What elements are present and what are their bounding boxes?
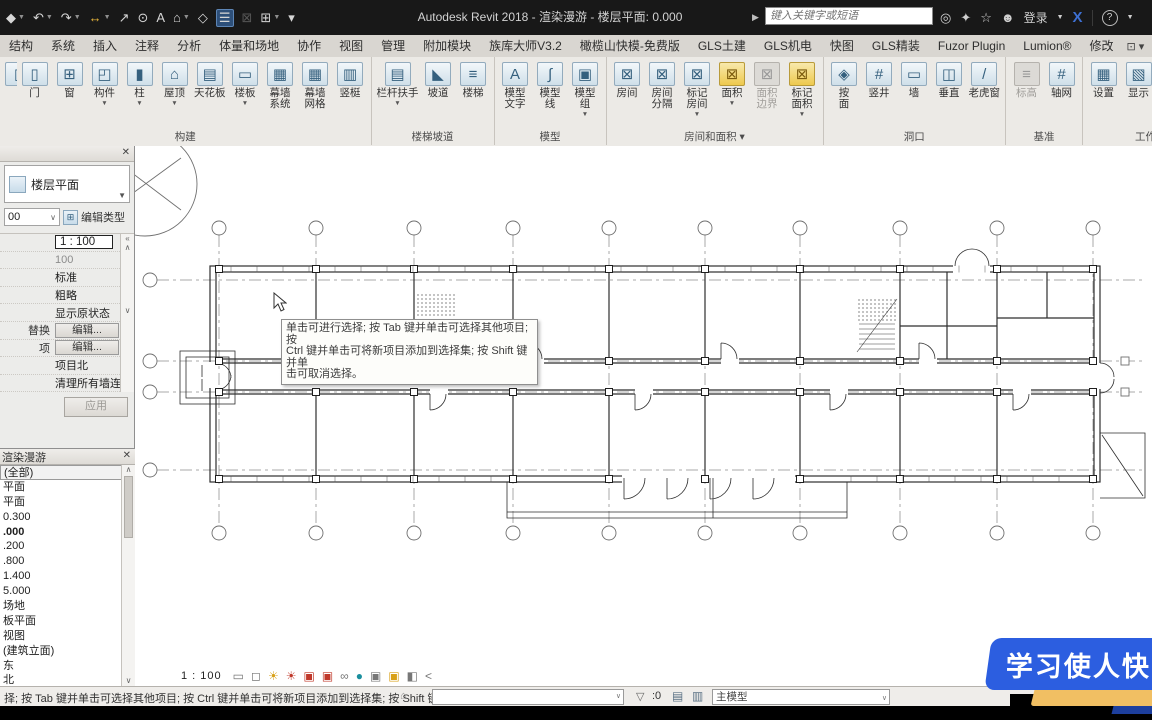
ribbon-button-label: 面积边界 bbox=[757, 88, 778, 110]
window-title: Autodesk Revit 2018 - 渲染漫游 - 楼层平面: 0.000 bbox=[330, 0, 770, 35]
窗-icon: ⊞ bbox=[57, 62, 83, 86]
ribbon-group-label: 工作平面 bbox=[1083, 130, 1152, 145]
tab-Lumion®[interactable]: Lumion® bbox=[1014, 35, 1080, 57]
ribbon-button-label: 老虎窗 bbox=[969, 88, 1001, 99]
tree-item[interactable]: 5.000 bbox=[0, 584, 122, 599]
显示-icon: ▧ bbox=[1126, 62, 1152, 86]
ribbon-button-垂直[interactable]: ◫垂直 bbox=[932, 60, 967, 99]
instance-combo-value: 00 bbox=[8, 211, 20, 223]
面积-icon: ⊠ bbox=[719, 62, 745, 86]
ribbon-button-墙[interactable]: ▭墙 bbox=[897, 60, 932, 99]
ribbon-group: ▯▯门⊞窗◰构件▼▮柱▼⌂屋顶▼▤天花板▭楼板▼▦幕墙系统▦幕墙网格▥竖梃构建 bbox=[0, 57, 372, 145]
ribbon-button-竖井[interactable]: #竖井 bbox=[862, 60, 897, 99]
divider bbox=[1092, 10, 1093, 26]
redo-icon[interactable]: ↷▼ bbox=[61, 10, 81, 26]
properties-table: «∧∨ 1 : 100100标准粗略显示原状态替换编辑...项编辑...项目北清… bbox=[0, 233, 134, 392]
ribbon-button-label: 面积 bbox=[722, 88, 743, 99]
ribbon-group-label: 楼梯坡道 bbox=[372, 130, 494, 145]
tab-注释[interactable]: 注释 bbox=[126, 35, 168, 57]
ribbon-button-模型组[interactable]: ▣模型组▼ bbox=[568, 60, 603, 118]
tree-item[interactable]: (建筑立面) bbox=[0, 644, 122, 659]
ribbon-button-房间分隔[interactable]: ⊠房间分隔 bbox=[645, 60, 680, 110]
communication-center-icon[interactable]: ✦ bbox=[960, 10, 971, 26]
ribbon-group: ▦设置▧显示▱参照平面▣查看工作平面 bbox=[1083, 57, 1152, 145]
drawing-area[interactable]: 单击可进行选择; 按 Tab 键并单击可选择其他项目; 按 Ctrl 键并单击可… bbox=[135, 146, 1152, 686]
browser-header: 渲染漫游 ✕ bbox=[0, 449, 135, 465]
天花板-icon: ▤ bbox=[197, 62, 223, 86]
properties-palette: ✕ 楼层平面 ▼ 00 ∨ ⊞ 编辑类型 «∧∨ 1 : 100100标准粗略显… bbox=[0, 146, 134, 417]
instance-combo[interactable]: 00 ∨ bbox=[4, 208, 60, 226]
tab-体量和场地[interactable]: 体量和场地 bbox=[210, 35, 288, 57]
ribbon-button-label: 幕墙系统 bbox=[270, 88, 291, 110]
ribbon-button-label: 显示 bbox=[1128, 88, 1149, 99]
left-panels: ✕ 楼层平面 ▼ 00 ∨ ⊞ 编辑类型 «∧∨ 1 : 100100标准粗略显… bbox=[0, 146, 135, 686]
ribbon-button-按面[interactable]: ◈按面 bbox=[827, 60, 862, 110]
selection-box-icon[interactable]: ◧ bbox=[407, 670, 418, 682]
tree-item[interactable]: 平面 bbox=[0, 495, 122, 510]
sun-path-icon[interactable]: ☀ bbox=[268, 670, 279, 682]
ribbon-button-房间[interactable]: ⊠房间 bbox=[610, 60, 645, 99]
tab-协作[interactable]: 协作 bbox=[288, 35, 330, 57]
displacement-sets-icon[interactable]: ▣ bbox=[388, 670, 399, 682]
title-bar: ◆▼↶▼↷▼↔▼↗⊙A⌂▼◇☰⊠⊞▼▾ Autodesk Revit 2018 … bbox=[0, 0, 1152, 35]
ribbon-button-坡道[interactable]: ◣坡道 bbox=[421, 60, 456, 99]
undo-icon[interactable]: ↶▼ bbox=[33, 10, 53, 26]
project-browser: 渲染漫游 ✕ (全部)平面平面0.300.000.200.8001.4005.0… bbox=[0, 448, 135, 686]
ribbon-tab-row: 结构系统插入注释分析体量和场地协作视图管理附加模块族库大师V3.2橄榄山快模-免… bbox=[0, 35, 1152, 57]
tab-视图[interactable]: 视图 bbox=[330, 35, 372, 57]
房间-icon: ⊠ bbox=[614, 62, 640, 86]
tab-分析[interactable]: 分析 bbox=[168, 35, 210, 57]
竖梃-icon: ▥ bbox=[337, 62, 363, 86]
favorites-icon[interactable]: ☆ bbox=[980, 10, 992, 26]
bottom-black-strip bbox=[0, 706, 1152, 720]
measure-icon[interactable]: ↔▼ bbox=[89, 10, 111, 25]
tree-item[interactable]: 场地 bbox=[0, 599, 122, 614]
edit-type-button[interactable]: ⊞ 编辑类型 bbox=[63, 209, 125, 225]
模型文字-icon: A bbox=[502, 62, 528, 86]
tree-item[interactable]: 北 bbox=[0, 673, 122, 686]
ribbon-group: ◈按面#竖井▭墙◫垂直/老虎窗洞口 bbox=[824, 57, 1007, 145]
design-option-value: 主模型 bbox=[716, 691, 748, 703]
ribbon-group: ▤栏杆扶手▼◣坡道≡楼梯楼梯坡道 bbox=[372, 57, 495, 145]
property-label: 项 bbox=[0, 340, 53, 356]
ribbon-button-label: 天花板 bbox=[194, 88, 226, 99]
tag-by-category-icon[interactable]: ⊙ bbox=[137, 10, 148, 26]
幕墙系统-icon: ▦ bbox=[267, 62, 293, 86]
close-icon[interactable]: ✕ bbox=[123, 450, 131, 461]
chevron-down-icon[interactable]: ▼ bbox=[1127, 14, 1134, 21]
按面-icon: ◈ bbox=[831, 62, 857, 86]
ribbon-button-label: 门 bbox=[29, 88, 40, 99]
chevron-down-icon[interactable]: ▼ bbox=[394, 100, 400, 107]
ribbon-button-label: 标高 bbox=[1016, 88, 1037, 99]
edit-button[interactable]: 编辑... bbox=[55, 323, 119, 338]
门-icon: ▯ bbox=[22, 62, 48, 86]
ribbon-button-标记房间[interactable]: ⊠标记房间▼ bbox=[680, 60, 715, 118]
老虎窗-icon: / bbox=[971, 62, 997, 86]
close-icon[interactable]: ✕ bbox=[122, 147, 130, 158]
edit-type-icon: ⊞ bbox=[63, 210, 78, 225]
ribbon-button-显示[interactable]: ▧显示 bbox=[1121, 60, 1152, 99]
reveal-hidden-elements-icon[interactable]: ● bbox=[356, 670, 363, 682]
ribbon-button-label: 设置 bbox=[1093, 88, 1114, 99]
chevron-down-icon[interactable]: ▼ bbox=[582, 111, 588, 118]
floor-plan-type-icon bbox=[9, 176, 26, 193]
ribbon-button-label: 墙 bbox=[909, 88, 920, 99]
status-message: 择; 按 Tab 键并单击可选择其他项目; 按 Ctrl 键并单击可将新项目添加… bbox=[4, 690, 483, 706]
ribbon-button-栏杆扶手[interactable]: ▤栏杆扶手▼ bbox=[375, 60, 421, 107]
property-row: 100 bbox=[0, 252, 134, 270]
ribbon-button-label: 模型线 bbox=[540, 88, 561, 110]
ribbon-group-label: 模型 bbox=[495, 130, 606, 145]
tab-插入[interactable]: 插入 bbox=[84, 35, 126, 57]
show-crop-region-icon[interactable]: ▣ bbox=[322, 670, 333, 682]
ribbon-button-竖梃[interactable]: ▥竖梃 bbox=[333, 60, 368, 99]
type-selector[interactable]: 楼层平面 ▼ bbox=[4, 165, 130, 203]
search-input[interactable] bbox=[765, 7, 933, 25]
titlebar-right-icons: ◎✦☆☻登录▼X?▼ bbox=[940, 0, 1134, 35]
chevron-down-icon[interactable]: ∨ bbox=[50, 213, 56, 222]
ribbon-button-门[interactable]: ▯门 bbox=[17, 60, 52, 99]
chevron-down-icon[interactable]: ▼ bbox=[171, 100, 177, 107]
type-selector-label: 楼层平面 bbox=[31, 176, 79, 193]
ribbon-button-label: 坡道 bbox=[428, 88, 449, 99]
property-row: 项目北 bbox=[0, 357, 134, 375]
ribbon-button-幕墙系统[interactable]: ▦幕墙系统 bbox=[263, 60, 298, 110]
ribbon-button-模型文字[interactable]: A模型文字 bbox=[498, 60, 533, 110]
quick-access-toolbar: ◆▼↶▼↷▼↔▼↗⊙A⌂▼◇☰⊠⊞▼▾ bbox=[6, 0, 295, 35]
sign-in-button[interactable]: 登录 bbox=[1024, 9, 1048, 26]
property-row: 显示原状态 bbox=[0, 304, 134, 322]
ribbon-button-label: 轴网 bbox=[1051, 88, 1072, 99]
楼板-icon: ▭ bbox=[232, 62, 258, 86]
browser-tree: (全部)平面平面0.300.000.200.8001.4005.000场地板平面… bbox=[0, 465, 122, 686]
crop-view-icon[interactable]: ▣ bbox=[303, 670, 314, 682]
tab-修改[interactable]: 修改 bbox=[1080, 35, 1122, 57]
close-hidden-windows-icon[interactable]: ⊠ bbox=[242, 10, 253, 26]
property-row: 标准 bbox=[0, 269, 134, 287]
ribbon-button-标记面积[interactable]: ⊠标记面积▼ bbox=[785, 60, 820, 118]
mouse-cursor bbox=[273, 292, 287, 312]
ribbon-button-label: 柱 bbox=[134, 88, 145, 99]
property-row: 项编辑... bbox=[0, 340, 134, 358]
ribbon-button-cut[interactable]: ▯ bbox=[3, 60, 17, 88]
ribbon-button-label: 按面 bbox=[839, 88, 850, 110]
ribbon-button-label: 竖井 bbox=[869, 88, 890, 99]
edit-type-label: 编辑类型 bbox=[81, 209, 125, 225]
detail-level-icon[interactable]: ◻ bbox=[251, 670, 261, 682]
chevron-down-icon[interactable]: ▼ bbox=[1057, 14, 1064, 21]
ribbon-button-label: 标记面积 bbox=[792, 88, 813, 110]
tab-系统[interactable]: 系统 bbox=[42, 35, 84, 57]
垂直-icon: ◫ bbox=[936, 62, 962, 86]
模型组-icon: ▣ bbox=[572, 62, 598, 86]
switch-windows-icon[interactable]: ⊞▼ bbox=[260, 10, 280, 26]
tab-橄榄山快模-免费版[interactable]: 橄榄山快模-免费版 bbox=[571, 35, 689, 57]
tree-item[interactable]: .800 bbox=[0, 554, 122, 569]
ribbon-button-构件[interactable]: ◰构件▼ bbox=[87, 60, 122, 107]
屋顶-icon: ⌂ bbox=[162, 62, 188, 86]
bottom-right-black bbox=[1010, 694, 1152, 720]
worksets-combo[interactable]: ∨ bbox=[432, 689, 624, 705]
property-row: 1 : 100 bbox=[0, 234, 134, 252]
tooltip-line: 单击可进行选择; 按 Tab 键并单击可选择其他项目; 按 bbox=[286, 322, 528, 346]
ribbon-button-label: 栏杆扶手 bbox=[377, 88, 419, 99]
chevron-down-icon[interactable]: ▼ bbox=[101, 100, 107, 107]
ribbon-button-label: 窗 bbox=[64, 88, 75, 99]
ribbon-button-label: 幕墙网格 bbox=[305, 88, 326, 110]
ribbon-button-label: 房间 bbox=[617, 88, 638, 99]
exchange-apps-icon[interactable]: X bbox=[1073, 9, 1083, 26]
ribbon-button-label: 竖梃 bbox=[340, 88, 361, 99]
status-home-icon: ⌂ bbox=[400, 690, 407, 702]
view-control-icons: ▭◻☀☀▣▣∞●▣▣◧< bbox=[233, 670, 432, 682]
tooltip-line: Ctrl 键并单击可将新项目添加到选择集; 按 Shift 键并单 bbox=[286, 345, 527, 369]
status-bar: 择; 按 Tab 键并单击可选择其他项目; 按 Ctrl 键并单击可将新项目添加… bbox=[0, 686, 1152, 707]
browser-title: 渲染漫游 bbox=[0, 452, 46, 464]
ribbon-button-label: 垂直 bbox=[939, 88, 960, 99]
floor-plan[interactable] bbox=[135, 146, 1152, 686]
ribbon-button-窗[interactable]: ⊞窗 bbox=[52, 60, 87, 99]
tooltip-line: 击可取消选择。 bbox=[286, 368, 363, 380]
ribbon-button-天花板[interactable]: ▤天花板 bbox=[192, 60, 228, 99]
visual-style-icon[interactable]: ▭ bbox=[233, 670, 244, 682]
customize-qat-icon[interactable]: ▾ bbox=[288, 10, 295, 26]
tab-附加模块[interactable]: 附加模块 bbox=[414, 35, 480, 57]
chevron-down-icon[interactable]: ▼ bbox=[118, 191, 126, 200]
ribbon: ▯▯门⊞窗◰构件▼▮柱▼⌂屋顶▼▤天花板▭楼板▼▦幕墙系统▦幕墙网格▥竖梃构建▤… bbox=[0, 57, 1152, 147]
ribbon-button-label: 楼板 bbox=[235, 88, 256, 99]
tab-族库大师V3.2[interactable]: 族库大师V3.2 bbox=[480, 35, 571, 57]
tab-GLS机电[interactable]: GLS机电 bbox=[755, 35, 821, 57]
tree-item[interactable]: 视图 bbox=[0, 629, 122, 644]
ribbon-button-面积[interactable]: ⊠面积▼ bbox=[715, 60, 750, 107]
chevron-down-icon[interactable]: ▼ bbox=[799, 111, 805, 118]
面积边界-icon: ⊠ bbox=[754, 62, 780, 86]
墙-icon: ▭ bbox=[901, 62, 927, 86]
房间分隔-icon: ⊠ bbox=[649, 62, 675, 86]
ribbon-button-设置[interactable]: ▦设置 bbox=[1086, 60, 1121, 99]
tab-快图[interactable]: 快图 bbox=[821, 35, 863, 57]
property-row: 粗略 bbox=[0, 287, 134, 305]
tab-GLS精装[interactable]: GLS精装 bbox=[863, 35, 929, 57]
ribbon-button-柱[interactable]: ▮柱▼ bbox=[122, 60, 157, 107]
chevron-down-icon[interactable]: ▼ bbox=[694, 111, 700, 118]
tab-结构[interactable]: 结构 bbox=[0, 35, 42, 57]
properties-header: ✕ bbox=[0, 146, 134, 162]
ribbon-button-label: 屋顶 bbox=[164, 88, 185, 99]
ribbon-group: A模型文字∫模型线▣模型组▼模型 bbox=[495, 57, 607, 145]
ribbon-group-label: 洞口 bbox=[824, 130, 1006, 145]
ribbon-button-label: 标记房间 bbox=[687, 88, 708, 110]
filter-icon[interactable]: ▽ bbox=[636, 690, 644, 703]
柱-icon: ▮ bbox=[127, 62, 153, 86]
标记房间-icon: ⊠ bbox=[684, 62, 710, 86]
tree-item[interactable]: 平面 bbox=[0, 480, 122, 495]
chevron-down-icon[interactable]: ▼ bbox=[242, 100, 248, 107]
ribbon-group-label: 基准 bbox=[1006, 130, 1082, 145]
selection-tooltip: 单击可进行选择; 按 Tab 键并单击可选择其他项目; 按 Ctrl 键并单击可… bbox=[281, 319, 538, 385]
tree-item[interactable]: 东 bbox=[0, 659, 122, 674]
设置-icon: ▦ bbox=[1091, 62, 1117, 86]
app-menu-icon[interactable]: ◆▼ bbox=[6, 10, 25, 26]
property-row: 替换编辑... bbox=[0, 322, 134, 340]
tree-item[interactable]: 板平面 bbox=[0, 614, 122, 629]
section-icon[interactable]: ◇ bbox=[198, 10, 208, 26]
栏杆扶手-icon: ▤ bbox=[385, 62, 411, 86]
tab-Fuzor Plugin[interactable]: Fuzor Plugin bbox=[929, 35, 1014, 57]
ribbon-button-老虎窗[interactable]: /老虎窗 bbox=[967, 60, 1003, 99]
ribbon-button-label: 房间分隔 bbox=[652, 88, 673, 110]
ribbon-state-toggle-icon[interactable]: ⊡ ▾ bbox=[1127, 40, 1145, 53]
design-options-combo[interactable]: 主模型 ∨ bbox=[712, 689, 890, 705]
default-3d-view-icon[interactable]: ⌂▼ bbox=[173, 10, 190, 25]
ribbon-button-标高: ≡标高 bbox=[1009, 60, 1044, 99]
button-icon: ▯ bbox=[5, 62, 17, 86]
幕墙网格-icon: ▦ bbox=[302, 62, 328, 86]
temporary-view-properties-icon[interactable]: ▣ bbox=[370, 670, 381, 682]
轴网-icon: # bbox=[1049, 62, 1075, 86]
ribbon-group-label: 构建 bbox=[0, 130, 371, 145]
构件-icon: ◰ bbox=[92, 62, 118, 86]
ribbon-button-面积边界: ⊠面积边界 bbox=[750, 60, 785, 110]
temporary-hide-isolate-icon[interactable]: ∞ bbox=[340, 670, 349, 682]
标高-icon: ≡ bbox=[1014, 62, 1040, 86]
browser-scrollbar[interactable]: ∧∨ bbox=[121, 465, 135, 686]
help-icon[interactable]: ? bbox=[1102, 10, 1118, 26]
ribbon-button-楼板[interactable]: ▭楼板▼ bbox=[228, 60, 263, 107]
ribbon-button-幕墙网格[interactable]: ▦幕墙网格 bbox=[298, 60, 333, 110]
ribbon-button-屋顶[interactable]: ⌂屋顶▼ bbox=[157, 60, 192, 107]
标记面积-icon: ⊠ bbox=[789, 62, 815, 86]
ribbon-group: ≡标高#轴网基准 bbox=[1006, 57, 1083, 145]
tree-item[interactable]: (全部) bbox=[0, 465, 122, 480]
search-flyout-arrow[interactable]: ▶ bbox=[752, 12, 759, 23]
楼梯-icon: ≡ bbox=[460, 62, 486, 86]
tree-item[interactable]: 1.400 bbox=[0, 569, 122, 584]
tree-item[interactable]: .200 bbox=[0, 539, 122, 554]
tree-item[interactable]: .000 bbox=[0, 525, 122, 540]
ribbon-button-label: 模型组 bbox=[575, 88, 596, 110]
ribbon-button-楼梯[interactable]: ≡楼梯 bbox=[456, 60, 491, 99]
apply-button[interactable]: 应用 bbox=[64, 397, 128, 417]
ribbon-button-模型线[interactable]: ∫模型线 bbox=[533, 60, 568, 110]
ribbon-button-label: 楼梯 bbox=[463, 88, 484, 99]
ribbon-button-label: 模型文字 bbox=[505, 88, 526, 110]
property-label: 替换 bbox=[0, 322, 53, 338]
tab-GLS土建[interactable]: GLS土建 bbox=[689, 35, 755, 57]
竖井-icon: # bbox=[866, 62, 892, 86]
view-scale-label[interactable]: 1 : 100 bbox=[181, 670, 222, 682]
editable-only-icon[interactable]: ▤ bbox=[672, 689, 683, 703]
selection-count: :0 bbox=[652, 690, 661, 702]
ribbon-button-轴网[interactable]: #轴网 bbox=[1044, 60, 1079, 99]
shadows-icon[interactable]: ☀ bbox=[286, 670, 297, 682]
ribbon-group: ⊠房间⊠房间分隔⊠标记房间▼⊠面积▼⊠面积边界⊠标记面积▼房间和面积 ▾ bbox=[607, 57, 824, 145]
properties-scrollbar[interactable]: «∧∨ bbox=[120, 234, 134, 392]
ribbon-button-label: 构件 bbox=[94, 88, 115, 99]
tree-item[interactable]: 0.300 bbox=[0, 510, 122, 525]
user-icon[interactable]: ☻ bbox=[1001, 10, 1015, 25]
chevron-down-icon[interactable]: ▼ bbox=[729, 100, 735, 107]
chevron-down-icon[interactable]: ▼ bbox=[136, 100, 142, 107]
property-row: 清理所有墙连接 bbox=[0, 375, 134, 393]
exclude-options-icon[interactable]: ▥ bbox=[692, 689, 703, 703]
模型线-icon: ∫ bbox=[537, 62, 563, 86]
text-icon[interactable]: A bbox=[156, 10, 165, 25]
view-control-bar: 1 : 100 ▭◻☀☀▣▣∞●▣▣◧< bbox=[135, 666, 1152, 686]
tab-管理[interactable]: 管理 bbox=[372, 35, 414, 57]
search-icon[interactable]: ◎ bbox=[940, 10, 951, 26]
collapse-arrow-icon[interactable]: < bbox=[425, 670, 432, 682]
aligned-dimension-icon[interactable]: ↗ bbox=[119, 10, 130, 26]
thin-lines-icon[interactable]: ☰ bbox=[216, 9, 234, 27]
ribbon-group-label: 房间和面积 ▾ bbox=[607, 130, 823, 145]
坡道-icon: ◣ bbox=[425, 62, 451, 86]
edit-button[interactable]: 编辑... bbox=[55, 340, 119, 355]
